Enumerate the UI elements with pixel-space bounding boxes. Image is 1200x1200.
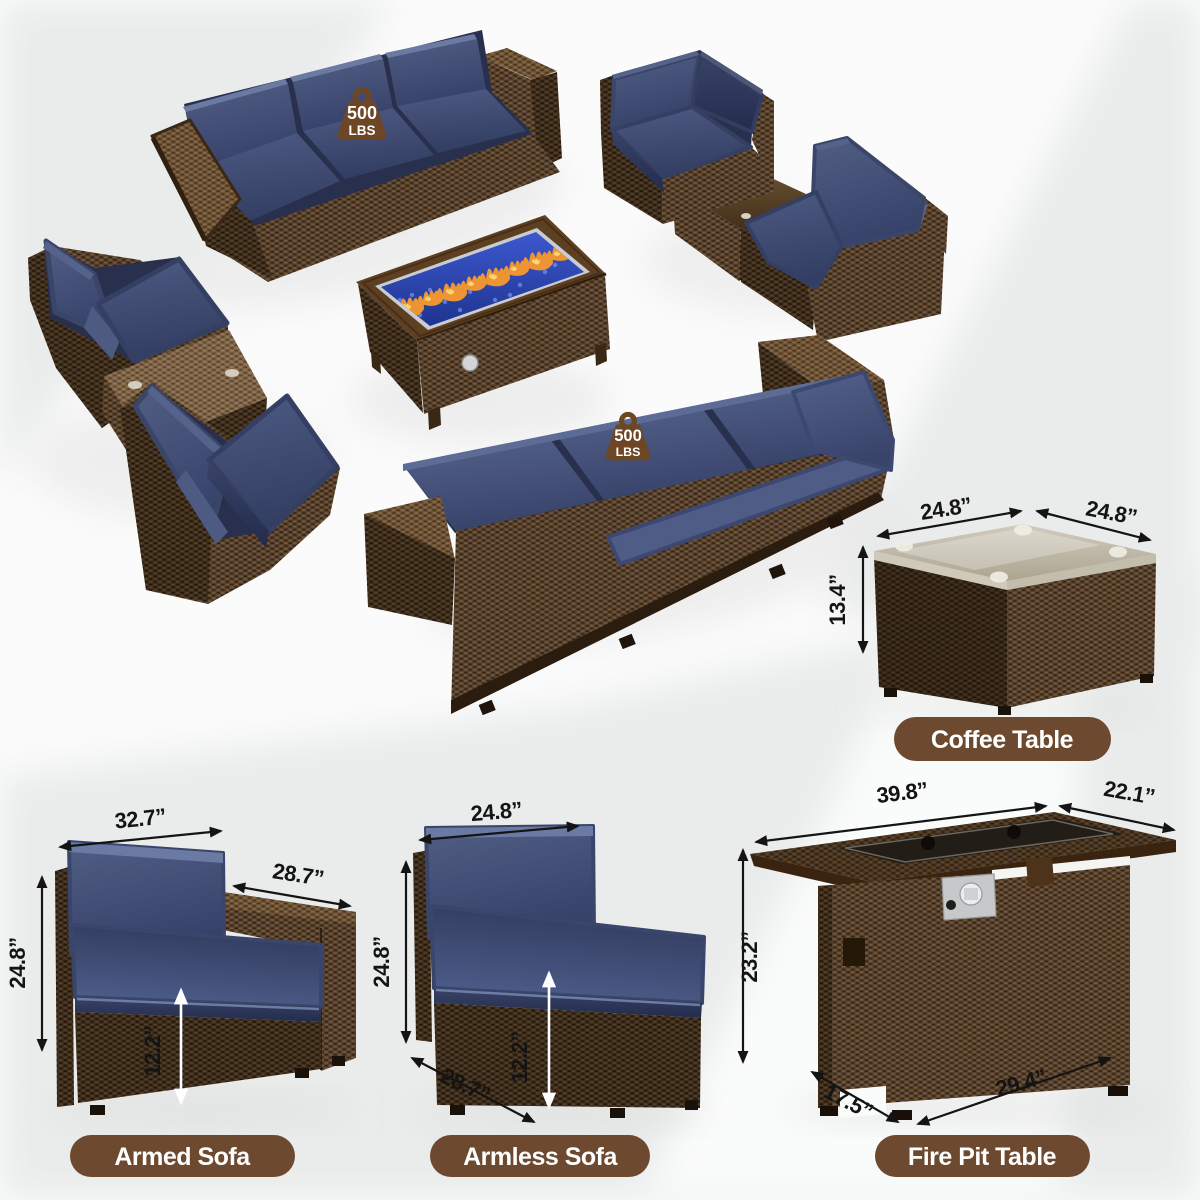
svg-text:Armless Sofa: Armless Sofa — [463, 1143, 618, 1171]
svg-text:12.2”: 12.2” — [140, 1025, 165, 1076]
svg-text:Coffee Table: Coffee Table — [931, 726, 1074, 754]
svg-text:23.2”: 23.2” — [737, 931, 762, 982]
svg-text:24.8”: 24.8” — [5, 937, 30, 988]
svg-text:13.4”: 13.4” — [825, 574, 850, 625]
svg-text:24.8”: 24.8” — [470, 797, 523, 826]
svg-text:24.8”: 24.8” — [369, 936, 394, 987]
svg-text:Fire Pit Table: Fire Pit Table — [908, 1143, 1057, 1171]
svg-text:LBS: LBS — [616, 445, 641, 459]
svg-text:LBS: LBS — [349, 123, 376, 138]
svg-text:500: 500 — [347, 103, 377, 123]
svg-text:32.7”: 32.7” — [113, 803, 167, 833]
svg-text:Armed Sofa: Armed Sofa — [114, 1143, 251, 1171]
svg-text:500: 500 — [614, 426, 642, 445]
svg-text:12.2”: 12.2” — [507, 1031, 532, 1082]
